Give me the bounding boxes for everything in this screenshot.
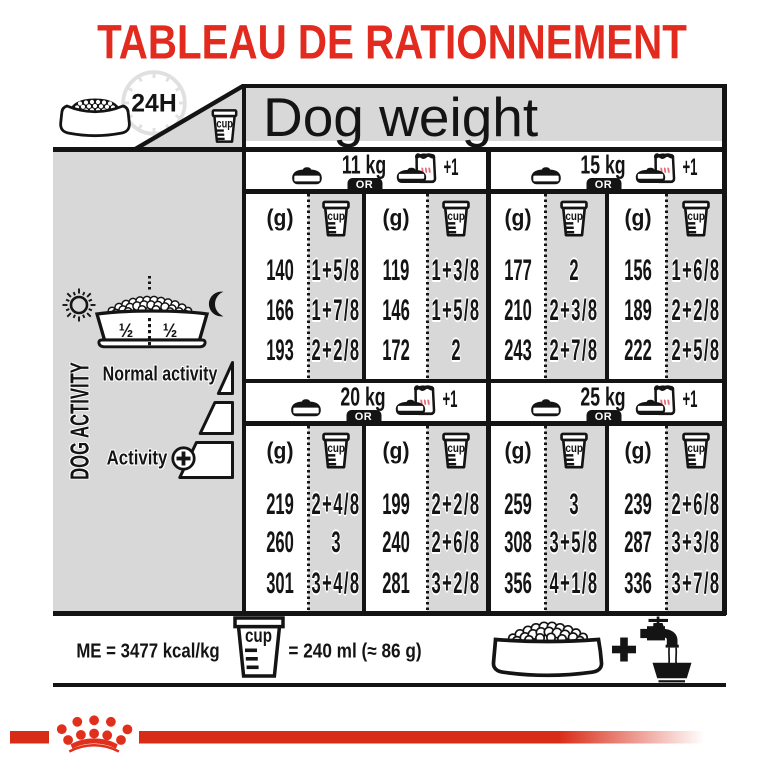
svg-text:½: ½: [163, 319, 178, 341]
svg-text:½: ½: [119, 319, 134, 341]
svg-text:cup: cup: [245, 624, 272, 646]
